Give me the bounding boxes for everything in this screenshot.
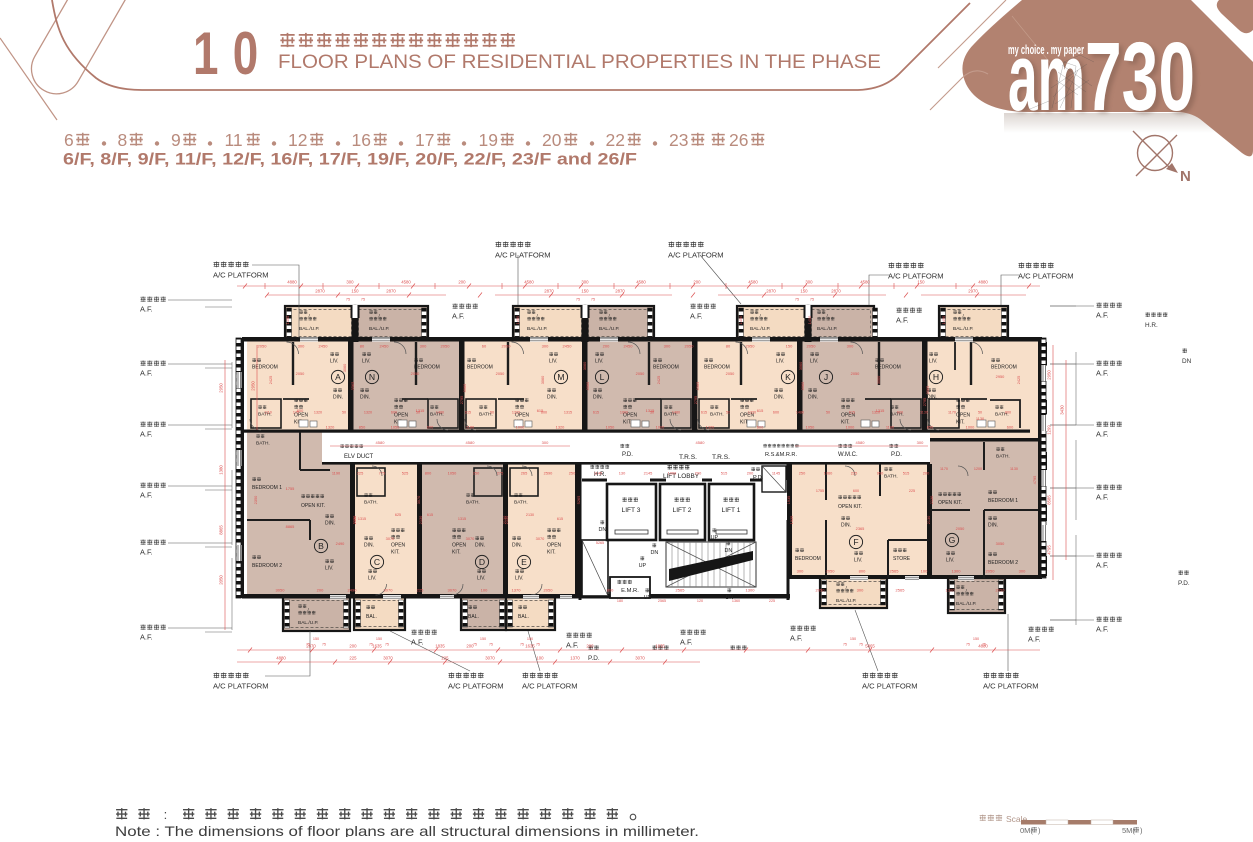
svg-text:BATH.: BATH. [256, 440, 270, 446]
svg-text:2050: 2050 [496, 371, 505, 376]
svg-text:K: K [785, 372, 791, 382]
svg-text:120: 120 [697, 599, 703, 603]
svg-text:LIV.: LIV. [595, 359, 603, 365]
svg-text:130: 130 [619, 471, 626, 476]
svg-text:1000: 1000 [620, 411, 628, 415]
svg-text:16: 16 [352, 130, 371, 150]
svg-text:A.F.: A.F. [140, 305, 153, 314]
svg-text:9: 9 [171, 130, 181, 150]
svg-text:20: 20 [542, 130, 562, 150]
svg-text:4580: 4580 [856, 440, 866, 445]
svg-text:75: 75 [982, 643, 986, 647]
svg-text:3070: 3070 [384, 588, 394, 593]
svg-text:1370: 1370 [570, 656, 580, 661]
svg-text:BEDROOM 1: BEDROOM 1 [988, 498, 1018, 504]
svg-text:200: 200 [349, 644, 357, 649]
svg-text:6: 6 [64, 130, 74, 150]
svg-text:150: 150 [527, 637, 533, 641]
svg-text:800: 800 [425, 471, 432, 476]
svg-text:DN: DN [651, 550, 659, 556]
svg-text:1315: 1315 [358, 517, 366, 521]
svg-text:600: 600 [427, 425, 434, 430]
svg-text:300: 300 [420, 344, 427, 349]
svg-text:3070: 3070 [485, 656, 495, 661]
svg-text:2050: 2050 [986, 569, 996, 574]
svg-text:150: 150 [800, 289, 808, 294]
svg-text:2050: 2050 [441, 344, 451, 349]
svg-text:615: 615 [557, 517, 563, 521]
svg-text:150: 150 [850, 637, 856, 641]
svg-text:4580: 4580 [466, 440, 476, 445]
svg-text:2050: 2050 [258, 344, 268, 349]
svg-text:OPEN KIT.: OPEN KIT. [301, 503, 325, 509]
svg-text:3565: 3565 [350, 382, 355, 391]
svg-text:A.F.: A.F. [1096, 369, 1109, 378]
svg-text:75: 75 [520, 643, 524, 647]
svg-text:600: 600 [773, 411, 779, 415]
svg-text:OPEN KIT.: OPEN KIT. [938, 500, 962, 506]
svg-text:625: 625 [395, 513, 401, 517]
svg-text:A.F.: A.F. [566, 641, 579, 650]
svg-text:DIN.: DIN. [808, 395, 818, 401]
svg-text:1 0: 1 0 [193, 20, 259, 87]
svg-text:BATH.: BATH. [466, 499, 480, 505]
svg-text:75: 75 [843, 643, 847, 647]
svg-text:1320: 1320 [872, 411, 880, 415]
svg-text:A.F.: A.F. [680, 638, 693, 647]
svg-text:3070: 3070 [536, 536, 545, 541]
svg-text:2870: 2870 [315, 289, 325, 294]
svg-text:5265: 5265 [596, 541, 604, 545]
svg-text:75: 75 [346, 298, 350, 302]
svg-text:1835: 1835 [655, 644, 665, 649]
svg-text:P.D.: P.D. [753, 475, 764, 481]
svg-text:300: 300 [857, 588, 864, 593]
svg-text:4580: 4580 [401, 280, 411, 285]
svg-text:4580: 4580 [696, 440, 706, 445]
svg-text:A.F.: A.F. [690, 312, 703, 321]
svg-text:BEDROOM: BEDROOM [795, 556, 821, 562]
svg-text:LIV.: LIV. [549, 359, 557, 365]
svg-text:200: 200 [603, 344, 610, 349]
svg-text:515: 515 [903, 471, 910, 476]
svg-text:2130: 2130 [503, 516, 507, 524]
svg-text:75: 75 [473, 643, 477, 647]
svg-text:4795: 4795 [1047, 545, 1052, 555]
svg-text:am: am [1008, 24, 1085, 131]
svg-text:100: 100 [921, 569, 928, 574]
svg-text:DN: DN [1182, 358, 1192, 365]
svg-text:C: C [374, 557, 380, 567]
svg-text:615: 615 [701, 411, 707, 415]
svg-text:1130: 1130 [1010, 467, 1018, 471]
svg-text:1380: 1380 [219, 465, 224, 475]
svg-text:1180: 1180 [886, 425, 895, 430]
svg-text:A/C PLATFORM: A/C PLATFORM [668, 250, 724, 259]
svg-text:250: 250 [799, 471, 806, 476]
svg-text:2950: 2950 [251, 381, 256, 391]
svg-text:W.M.C.: W.M.C. [838, 452, 858, 458]
svg-text:E: E [521, 557, 527, 567]
svg-text:2565: 2565 [676, 588, 686, 593]
svg-text:2050: 2050 [816, 588, 826, 593]
svg-text:4580: 4580 [636, 280, 646, 285]
svg-text:3060: 3060 [462, 383, 467, 392]
svg-text:1170: 1170 [948, 411, 956, 415]
svg-text:3070: 3070 [386, 536, 395, 541]
svg-text:300: 300 [298, 344, 305, 349]
svg-text:600: 600 [541, 411, 547, 415]
svg-text:2050: 2050 [996, 588, 1006, 593]
svg-text:J: J [824, 372, 828, 382]
svg-text:OPEN: OPEN [956, 413, 971, 419]
svg-text:4795: 4795 [1032, 476, 1037, 485]
svg-text:150: 150 [313, 637, 319, 641]
svg-text:LIV.: LIV. [325, 566, 333, 572]
svg-text:8: 8 [118, 130, 128, 150]
svg-text:N: N [369, 372, 375, 382]
svg-text:3060: 3060 [799, 362, 803, 370]
svg-text:225: 225 [851, 471, 858, 476]
svg-text:LIFT 3: LIFT 3 [622, 507, 641, 514]
svg-text:1180: 1180 [466, 425, 475, 430]
svg-text:300: 300 [1019, 569, 1026, 574]
svg-text:FLOOR PLANS OF RESIDENTIAL PRO: FLOOR PLANS OF RESIDENTIAL PROPERTIES IN… [278, 51, 881, 73]
svg-text:D: D [479, 557, 485, 567]
svg-text:BAL./U.P.: BAL./U.P. [298, 620, 318, 626]
svg-text:ELV DUCT: ELV DUCT [344, 454, 374, 460]
svg-text:2050: 2050 [807, 344, 817, 349]
svg-text:4880: 4880 [978, 280, 988, 285]
svg-text:3565: 3565 [925, 386, 930, 395]
svg-text:2050: 2050 [826, 569, 836, 574]
svg-text:OPEN: OPEN [391, 543, 406, 549]
svg-text:3430: 3430 [1060, 405, 1065, 415]
svg-text:DIN.: DIN. [593, 395, 603, 401]
svg-text:300: 300 [917, 440, 924, 445]
svg-text:1450: 1450 [515, 315, 520, 324]
svg-text:5M(: 5M( [1122, 826, 1135, 835]
svg-text:1300: 1300 [946, 588, 956, 593]
svg-text:A.F.: A.F. [140, 548, 153, 557]
svg-text:A/C PLATFORM: A/C PLATFORM [983, 681, 1039, 690]
svg-text:BATH.: BATH. [364, 499, 378, 505]
svg-text:950: 950 [877, 471, 884, 476]
svg-text:1450: 1450 [738, 315, 743, 324]
svg-text:75: 75 [369, 643, 373, 647]
svg-text:225: 225 [769, 599, 775, 603]
svg-text:2950: 2950 [219, 383, 224, 393]
svg-text:2870: 2870 [766, 289, 776, 294]
svg-text:8865: 8865 [286, 524, 295, 529]
svg-text:80: 80 [726, 344, 731, 349]
svg-text:225: 225 [357, 471, 364, 476]
svg-text:615: 615 [465, 411, 471, 415]
svg-text:BEDROOM: BEDROOM [467, 365, 493, 371]
svg-text:515: 515 [721, 471, 728, 476]
svg-text:200: 200 [747, 471, 754, 476]
svg-text:P.D.: P.D. [588, 655, 600, 662]
svg-text:600: 600 [391, 411, 397, 415]
svg-text:2130: 2130 [418, 515, 423, 524]
svg-text:600: 600 [897, 411, 903, 415]
svg-text:LIV.: LIV. [929, 359, 937, 365]
svg-text:2450: 2450 [624, 344, 634, 349]
svg-text:UP: UP [644, 595, 652, 601]
svg-text:200: 200 [695, 471, 702, 476]
svg-text:12: 12 [288, 130, 307, 150]
svg-text:600: 600 [853, 489, 859, 493]
svg-text:1320: 1320 [706, 425, 715, 430]
svg-text:100: 100 [536, 656, 544, 661]
svg-text:DIN.: DIN. [988, 523, 998, 529]
svg-text:1000: 1000 [656, 425, 665, 430]
svg-text:DN: DN [599, 527, 607, 533]
svg-text:200: 200 [586, 644, 594, 649]
svg-text:615: 615 [849, 411, 855, 415]
svg-text:150: 150 [351, 289, 359, 294]
svg-text:775: 775 [379, 471, 386, 476]
svg-text:1480: 1480 [796, 411, 804, 415]
svg-text:H: H [933, 372, 939, 382]
svg-text:22: 22 [606, 130, 625, 150]
svg-text:KIT.: KIT. [391, 550, 400, 556]
svg-text:2050: 2050 [219, 575, 224, 585]
svg-text:6/F, 8/F, 9/F, 11/F, 12/F, 16/: 6/F, 8/F, 9/F, 11/F, 12/F, 16/F, 17/F, 1… [63, 150, 637, 169]
svg-text:BEDROOM 2: BEDROOM 2 [252, 563, 282, 569]
svg-text:T.R.S.: T.R.S. [712, 454, 730, 461]
svg-text:615: 615 [427, 513, 433, 517]
svg-text:1060: 1060 [824, 471, 833, 476]
svg-text:300: 300 [797, 569, 804, 574]
svg-text:2050: 2050 [411, 371, 420, 376]
svg-text:BATH.: BATH. [884, 473, 898, 479]
svg-text:1300: 1300 [746, 588, 756, 593]
svg-text:A.F.: A.F. [140, 430, 153, 439]
svg-text:BAL./U.P.: BAL./U.P. [369, 326, 389, 332]
svg-text:1145: 1145 [772, 471, 780, 476]
svg-text:8865: 8865 [219, 525, 224, 535]
svg-text:BEDROOM 2: BEDROOM 2 [988, 560, 1018, 566]
svg-text:150: 150 [581, 289, 589, 294]
svg-text:75: 75 [795, 298, 799, 302]
svg-text:BAL./U.P.: BAL./U.P. [817, 326, 837, 332]
svg-text:BAL.: BAL. [366, 614, 377, 620]
svg-text:2490: 2490 [336, 541, 345, 546]
svg-text:A.F.: A.F. [1096, 430, 1109, 439]
svg-text:P.D.: P.D. [891, 452, 902, 458]
svg-text:DIN.: DIN. [325, 521, 335, 527]
svg-text:5865: 5865 [865, 644, 875, 649]
svg-text:75: 75 [810, 298, 814, 302]
svg-text:75: 75 [966, 643, 970, 647]
svg-text:A.F.: A.F. [1096, 561, 1109, 570]
svg-text:225: 225 [349, 656, 357, 661]
svg-text:BATH.: BATH. [710, 411, 724, 417]
svg-text:1050: 1050 [448, 471, 457, 476]
svg-text:300: 300 [346, 280, 354, 285]
svg-text:STORE: STORE [893, 556, 911, 562]
svg-text:2050: 2050 [851, 371, 860, 376]
svg-text:3060: 3060 [800, 381, 805, 390]
svg-text:4580: 4580 [860, 280, 870, 285]
svg-text:DIN.: DIN. [774, 395, 784, 401]
svg-text:A: A [335, 372, 341, 382]
svg-text:2130: 2130 [929, 495, 934, 504]
svg-text:1200: 1200 [974, 467, 982, 471]
svg-text:1000: 1000 [846, 425, 855, 430]
svg-text:2130: 2130 [353, 516, 357, 524]
svg-text:1315: 1315 [564, 411, 572, 415]
svg-text:E.M.R.: E.M.R. [621, 588, 639, 594]
svg-text:A/C PLATFORM: A/C PLATFORM [1018, 271, 1074, 280]
svg-text:2795: 2795 [694, 396, 698, 404]
svg-text:3060: 3060 [343, 364, 347, 372]
svg-text:1299: 1299 [1047, 425, 1052, 435]
svg-text:1050: 1050 [606, 425, 615, 430]
svg-text:1130: 1130 [920, 411, 928, 415]
svg-text:2050: 2050 [502, 344, 512, 349]
svg-text:300: 300 [542, 440, 549, 445]
svg-text:A.F.: A.F. [790, 634, 803, 643]
svg-text:100: 100 [481, 588, 488, 593]
svg-text:1050: 1050 [806, 425, 815, 430]
svg-text:A.F.: A.F. [411, 638, 424, 647]
svg-text:my choice . my paper: my choice . my paper [1008, 43, 1084, 57]
svg-text:75: 75 [536, 643, 540, 647]
svg-text:2130: 2130 [927, 516, 931, 524]
svg-text:1360: 1360 [732, 599, 740, 603]
svg-text:A/C PLATFORM: A/C PLATFORM [213, 681, 269, 690]
svg-text:75: 75 [361, 298, 365, 302]
svg-text:1320: 1320 [512, 411, 520, 415]
svg-text:17: 17 [415, 130, 434, 150]
svg-text:0M(: 0M( [1020, 826, 1033, 835]
svg-text:KIT.: KIT. [547, 550, 556, 556]
svg-text:DIN.: DIN. [475, 543, 485, 549]
svg-text:1300: 1300 [952, 569, 962, 574]
svg-text:75: 75 [385, 643, 389, 647]
svg-text:50: 50 [490, 411, 494, 415]
svg-text:R.S.&M.R.R.: R.S.&M.R.R. [765, 452, 797, 458]
svg-text:225: 225 [441, 656, 449, 661]
svg-text:150: 150 [973, 637, 979, 641]
svg-text:200: 200 [923, 471, 930, 476]
svg-text:2050: 2050 [685, 344, 695, 349]
svg-text:250: 250 [473, 471, 480, 476]
svg-text:2490: 2490 [348, 588, 358, 593]
svg-text:BAL./U.P.: BAL./U.P. [953, 326, 973, 332]
svg-text:1935: 1935 [787, 496, 791, 504]
svg-text:75: 75 [591, 298, 595, 302]
svg-text:L: L [600, 372, 605, 382]
svg-text:LIV.: LIV. [810, 359, 818, 365]
svg-text:A/C PLATFORM: A/C PLATFORM [888, 271, 944, 280]
svg-text:4580: 4580 [524, 280, 534, 285]
svg-text:1320: 1320 [364, 411, 372, 415]
svg-text:75: 75 [489, 643, 493, 647]
svg-text:OPEN KIT.: OPEN KIT. [838, 504, 862, 510]
svg-text:BATH.: BATH. [514, 499, 528, 505]
svg-text:LIFT 1: LIFT 1 [722, 507, 741, 514]
svg-text:LIV.: LIV. [477, 576, 485, 582]
svg-text:UP: UP [639, 563, 647, 569]
svg-text:DIN.: DIN. [547, 395, 557, 401]
svg-text:BAL./U.P.: BAL./U.P. [956, 601, 976, 607]
svg-text:3050: 3050 [996, 541, 1005, 546]
svg-text:300: 300 [664, 344, 671, 349]
svg-text:800: 800 [607, 588, 614, 593]
svg-text:600: 600 [757, 425, 764, 430]
svg-text:LIV.: LIV. [515, 576, 523, 582]
svg-text:2590: 2590 [544, 471, 553, 476]
svg-text:2050: 2050 [726, 371, 735, 376]
svg-text:50: 50 [416, 411, 420, 415]
svg-text:2795: 2795 [923, 398, 927, 406]
svg-text:A.F.: A.F. [140, 369, 153, 378]
svg-text:1320: 1320 [748, 411, 756, 415]
svg-text:1480: 1480 [672, 411, 680, 415]
svg-text:2130: 2130 [526, 513, 534, 517]
svg-text:250: 250 [569, 471, 576, 476]
svg-text:1450: 1450 [807, 315, 812, 324]
svg-text:800: 800 [1005, 411, 1011, 415]
svg-text:800: 800 [859, 569, 866, 574]
svg-text:1835: 1835 [435, 644, 445, 649]
svg-text:B: B [318, 541, 324, 551]
svg-text:1320: 1320 [556, 425, 565, 430]
svg-text:1320: 1320 [326, 425, 335, 430]
svg-text:OPEN: OPEN [547, 543, 562, 549]
svg-text:1000: 1000 [966, 425, 975, 430]
svg-text:850: 850 [359, 425, 366, 430]
svg-text:1130: 1130 [976, 416, 985, 421]
svg-text:A.F.: A.F. [1096, 625, 1109, 634]
svg-text:LIV.: LIV. [946, 558, 954, 564]
svg-text:BEDROOM: BEDROOM [653, 365, 679, 371]
svg-text:3565: 3565 [695, 382, 700, 391]
svg-text:BEDROOM: BEDROOM [704, 365, 730, 371]
svg-text:A.F.: A.F. [140, 491, 153, 500]
svg-text:BAL./U.P.: BAL./U.P. [299, 326, 319, 332]
svg-text:1935: 1935 [789, 516, 794, 525]
svg-text:2425: 2425 [269, 376, 273, 384]
svg-text:850: 850 [927, 425, 934, 430]
svg-text:BAL.: BAL. [518, 614, 529, 620]
svg-text:1315: 1315 [458, 517, 466, 521]
svg-text:1170: 1170 [940, 467, 948, 471]
svg-text:2950: 2950 [1047, 370, 1052, 380]
svg-text:3070: 3070 [635, 656, 645, 661]
svg-text:1755: 1755 [286, 486, 295, 491]
svg-text:1320: 1320 [314, 411, 322, 415]
svg-text:G: G [949, 535, 956, 545]
svg-text:2050: 2050 [956, 526, 965, 531]
svg-text:A/C PLATFORM: A/C PLATFORM [862, 681, 918, 690]
svg-text:50: 50 [726, 411, 730, 415]
svg-text:A/C PLATFORM: A/C PLATFORM [213, 270, 269, 279]
svg-text:P.D.: P.D. [1178, 580, 1190, 587]
svg-text:170: 170 [293, 411, 299, 415]
svg-text:11: 11 [225, 130, 243, 150]
svg-text:A/C PLATFORM: A/C PLATFORM [448, 681, 504, 690]
svg-text:2450: 2450 [563, 344, 573, 349]
svg-text:KIT.: KIT. [956, 420, 965, 426]
svg-text:A.F.: A.F. [896, 316, 909, 325]
svg-text:150: 150 [376, 637, 382, 641]
svg-text:2970: 2970 [968, 289, 978, 294]
svg-text:LIV.: LIV. [776, 359, 784, 365]
